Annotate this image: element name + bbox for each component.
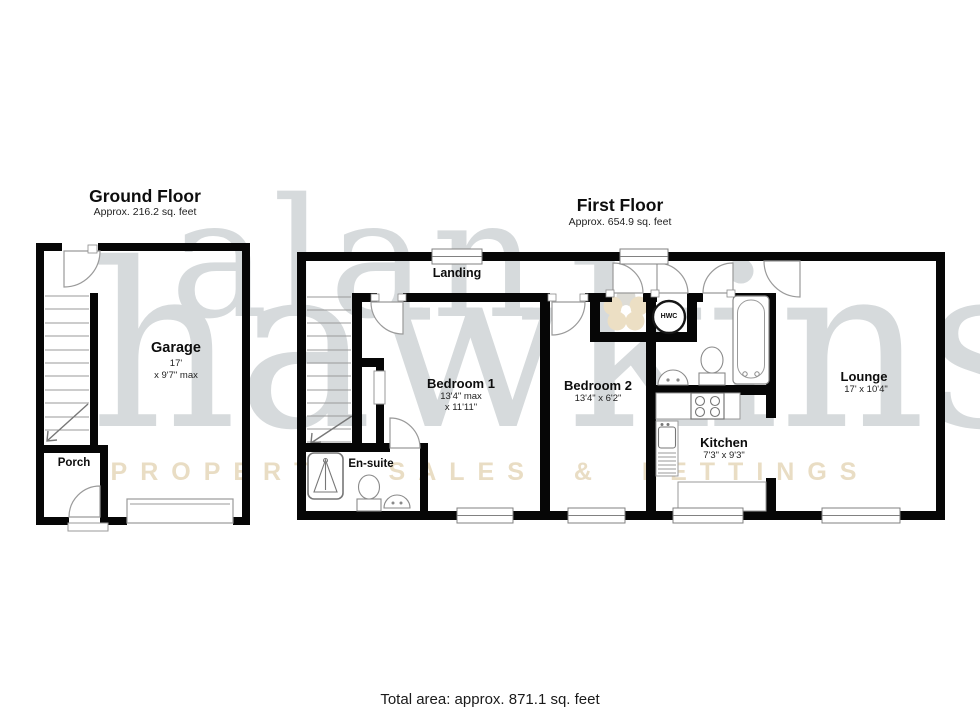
room-label-lounge: Lounge xyxy=(841,369,888,384)
first-floor-subtitle: Approx. 654.9 sq. feet xyxy=(569,216,672,228)
bedroom2-door-arc xyxy=(552,302,585,335)
room-dim-bedroom1-2: x 11'11" xyxy=(445,402,477,413)
toilet-cistern xyxy=(699,373,725,385)
closet-door xyxy=(374,371,385,404)
window xyxy=(432,249,482,264)
bathroom-sink xyxy=(658,370,688,385)
kitchen-sink xyxy=(659,427,676,448)
room-dim-bedroom2: 13'4" x 6'2" xyxy=(575,393,622,404)
ensuite-toilet xyxy=(359,475,380,499)
porch-door-arc xyxy=(69,486,100,517)
room-dim-bedroom1-1: 13'4" max xyxy=(440,391,482,402)
room-label-hwc: HWC xyxy=(661,313,678,320)
window xyxy=(457,508,513,523)
hwc-door-arc xyxy=(657,263,688,293)
kitchen-worktop xyxy=(678,482,766,511)
porch-step xyxy=(68,523,108,531)
ensuite-toilet-cistern xyxy=(357,499,381,511)
bathroom-door-arc xyxy=(703,263,733,293)
bedroom1-door-arc xyxy=(371,302,403,334)
room-label-kitchen: Kitchen xyxy=(700,435,748,450)
window xyxy=(673,508,743,523)
cupboard-door-arc xyxy=(613,263,643,293)
door-hinge xyxy=(88,245,97,253)
window xyxy=(822,508,900,523)
first-floor-title: First Floor xyxy=(577,195,664,216)
room-dim-garage-2: x 9'7" max xyxy=(154,370,198,381)
room-label-bedroom1: Bedroom 1 xyxy=(427,376,495,391)
room-dim-lounge: 17' x 10'4" xyxy=(844,384,887,395)
total-area-text: Total area: approx. 871.1 sq. feet xyxy=(380,691,599,708)
room-label-ensuite: En-suite xyxy=(348,458,393,470)
room-label-porch: Porch xyxy=(58,457,91,469)
ensuite-sink xyxy=(384,495,410,508)
floorplan-page: alan hawkins PROPERTY SALES & LETTINGS xyxy=(0,0,980,712)
room-label-landing: Landing xyxy=(433,266,482,280)
ground-floor-subtitle: Approx. 216.2 sq. feet xyxy=(94,206,197,218)
ground-stairs-direction-arrow xyxy=(47,404,88,441)
toilet xyxy=(701,347,723,373)
ground-floor-plan xyxy=(36,243,250,531)
room-label-garage: Garage xyxy=(151,340,201,356)
room-label-bedroom2: Bedroom 2 xyxy=(564,378,632,393)
room-dim-garage-1: 17' xyxy=(170,358,182,369)
window xyxy=(568,508,625,523)
ground-floor-title: Ground Floor xyxy=(89,186,201,207)
room-dim-kitchen: 7'3" x 9'3" xyxy=(703,450,745,461)
ensuite-door-arc xyxy=(390,418,420,448)
lounge-door-arc xyxy=(764,261,800,297)
window xyxy=(620,249,668,264)
floorplan-drawing xyxy=(0,0,980,712)
ground-entrance-door-arc xyxy=(64,251,100,287)
hob xyxy=(691,393,724,419)
garage-door xyxy=(127,499,233,523)
